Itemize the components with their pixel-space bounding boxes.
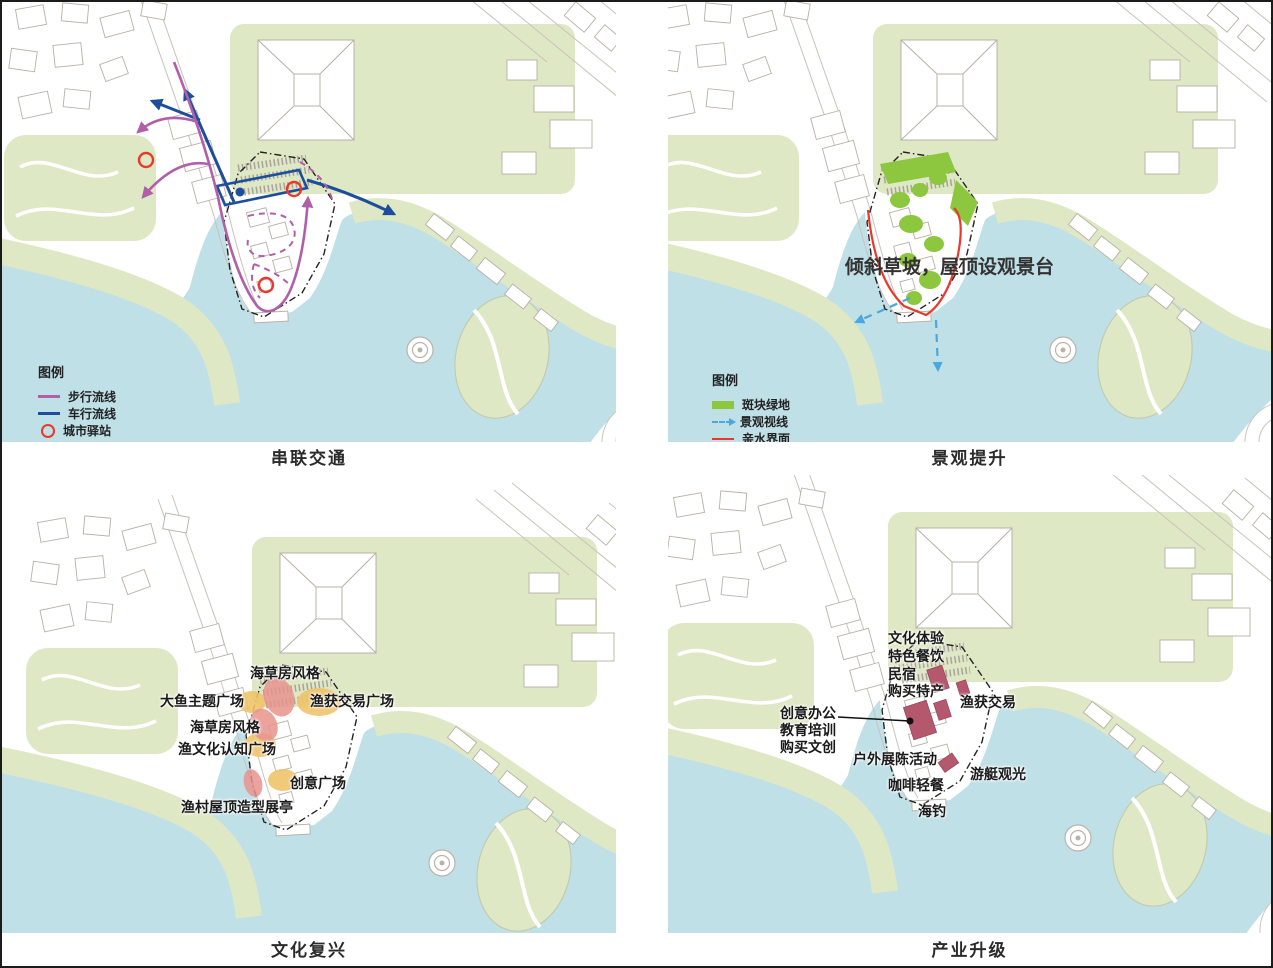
map-label: 海草房风格 xyxy=(250,663,320,683)
transit-stop-dot xyxy=(236,188,245,197)
map-label: 海钓 xyxy=(918,801,946,821)
map-label: 文化体验 xyxy=(888,628,944,648)
legend-heading: 图例 xyxy=(38,362,116,381)
panel-transport-map: 图例 步行流线 车行流线 城市驿站 xyxy=(2,2,616,442)
map-label: 特色餐饮 xyxy=(888,646,944,666)
legend-label: 城市驿站 xyxy=(63,422,111,439)
legend-label: 步行流线 xyxy=(68,388,116,405)
map-label: 渔获交易 xyxy=(960,692,1016,712)
legend-item: 景观视线 xyxy=(712,414,790,429)
legend-item: 斑块绿地 xyxy=(712,397,790,412)
map-label: 购买特产 xyxy=(888,681,944,701)
legend-label: 景观视线 xyxy=(740,413,788,430)
legend-landscape: 图例 斑块绿地 景观视线 亲水界面 xyxy=(712,370,790,442)
panel-title-industry: 产业升级 xyxy=(668,936,1271,961)
pedestrian-line-swatch xyxy=(38,395,60,398)
map-label: 大鱼主题广场 xyxy=(160,691,244,711)
panel-culture-map: 海草房风格 大鱼主题广场 渔获交易广场 海草房风格 渔文化认知广场 创意广场 渔… xyxy=(2,475,616,933)
legend-label: 车行流线 xyxy=(68,405,116,422)
waterfront-line-swatch xyxy=(712,438,734,440)
map-label: 渔文化认知广场 xyxy=(178,739,276,759)
map-label: 咖啡轻餐 xyxy=(888,775,944,795)
panel-title-culture: 文化复兴 xyxy=(2,936,616,961)
green-patch-swatch xyxy=(712,401,734,409)
panel-industry-map: 文化体验 特色餐饮 民宿 购买特产 渔获交易 创意办公 教育培训 购买文创 户外… xyxy=(668,475,1271,933)
vehicle-line-swatch xyxy=(38,412,60,415)
station-ring-swatch xyxy=(41,424,55,438)
map-label: 海草房风格 xyxy=(190,717,260,737)
legend-label: 亲水界面 xyxy=(742,430,790,442)
map-label: 渔获交易广场 xyxy=(310,691,394,711)
map-label: 创意广场 xyxy=(290,773,346,793)
culture-map-svg xyxy=(2,475,616,933)
legend-item: 城市驿站 xyxy=(38,423,116,438)
map-label: 游艇观光 xyxy=(970,764,1026,784)
legend-heading: 图例 xyxy=(712,370,790,389)
panel-title-transport: 串联交通 xyxy=(2,444,616,469)
map-label: 购买文创 xyxy=(780,737,836,757)
legend-transport: 图例 步行流线 车行流线 城市驿站 xyxy=(38,362,116,438)
legend-item: 亲水界面 xyxy=(712,431,790,442)
legend-item: 步行流线 xyxy=(38,389,116,404)
legend-label: 斑块绿地 xyxy=(742,396,790,413)
sightline-arrow-swatch xyxy=(712,421,732,423)
legend-item: 车行流线 xyxy=(38,406,116,421)
panel-landscape-map: 倾斜草坡，屋顶设观景台 图例 斑块绿地 景观视线 亲水界面 xyxy=(668,2,1271,442)
annotation-grass-slope: 倾斜草坡，屋顶设观景台 xyxy=(845,252,1054,279)
map-label: 渔村屋顶造型展亭 xyxy=(181,797,293,817)
map-label: 户外展陈活动 xyxy=(853,749,937,769)
panel-title-landscape: 景观提升 xyxy=(668,444,1271,469)
sheet: 图例 步行流线 车行流线 城市驿站 串联交通 xyxy=(0,0,1273,968)
